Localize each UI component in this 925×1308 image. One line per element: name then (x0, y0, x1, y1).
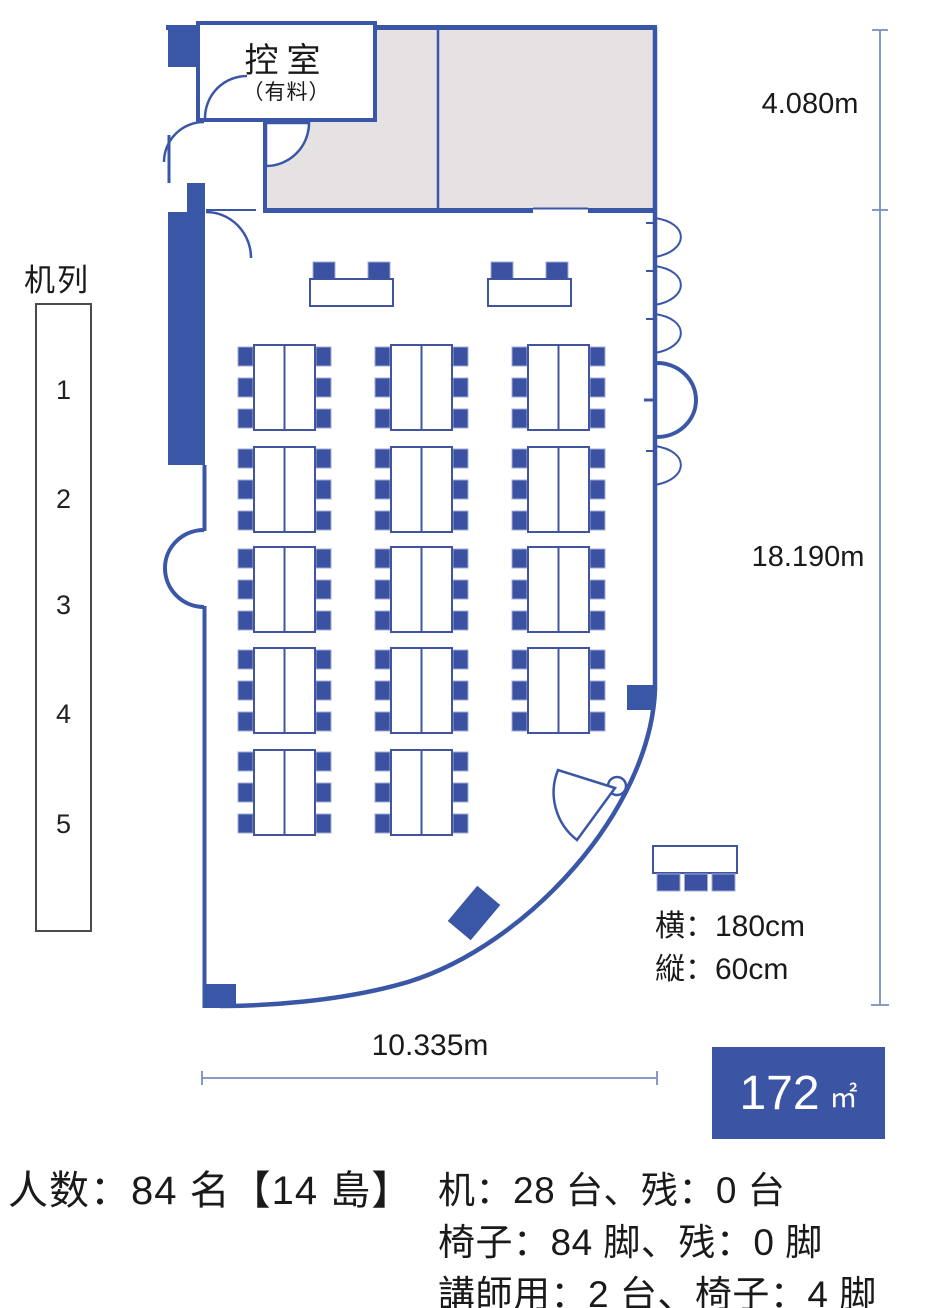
legend-desk (653, 846, 737, 891)
window-arc (646, 314, 681, 353)
desk-width-label: 横：180cm (655, 910, 805, 944)
desk-island (375, 648, 468, 733)
anteroom-label: 控室 (198, 33, 375, 82)
desk-row-number: 3 (37, 590, 90, 621)
pillar (627, 685, 655, 710)
desk-row-number: 5 (37, 809, 90, 840)
summary-chairs: 椅子：84 脚、残：0 脚 (438, 1212, 823, 1266)
left-wall-thick (168, 212, 205, 465)
window-arc (646, 218, 681, 257)
desk-row-number: 1 (37, 375, 90, 406)
area-value: 172 (739, 1066, 819, 1121)
curved-wall (220, 690, 655, 1006)
desk-island (238, 345, 331, 430)
desk-island (512, 447, 605, 532)
entrance-door-arc (206, 212, 251, 258)
double-door-left (165, 530, 204, 568)
dimension-width: 10.335m (355, 1029, 505, 1063)
summary-capacity: 人数：84 名【14 島】 (8, 1158, 412, 1216)
desk-depth-label: 縦：60cm (655, 944, 788, 988)
pillar (448, 886, 501, 941)
dimension-lower-height: 18.190m (738, 541, 878, 574)
lecturer-desk (488, 262, 571, 306)
desk-island (512, 648, 605, 733)
desk-island (375, 447, 468, 532)
desk-island (512, 345, 605, 430)
anteroom-note: （有料） (198, 76, 375, 106)
summary-desks: 机：28 台、残：0 台 (438, 1160, 785, 1214)
pillar (168, 27, 198, 67)
double-door-left (165, 568, 204, 607)
desk-island (512, 547, 605, 632)
dimension-line-horizontal (202, 1071, 657, 1085)
double-door-right (657, 363, 696, 400)
desk-island (238, 547, 331, 632)
dimension-line-vertical (871, 30, 889, 1005)
area-unit: ㎡ (830, 1070, 858, 1116)
desk-island (375, 547, 468, 632)
desk-island (238, 750, 331, 835)
desk-island (375, 750, 468, 835)
desk-island (375, 345, 468, 430)
dimension-upper-height: 4.080m (745, 88, 875, 121)
desk-row-number: 4 (37, 699, 90, 730)
desk-row-number: 2 (37, 484, 90, 515)
area-badge: 172 ㎡ (712, 1047, 885, 1139)
desk-rows-title: 机列 (24, 255, 90, 300)
summary-lecturer: 講師用：2 台、椅子：4 脚 (438, 1264, 877, 1308)
floor-plan-page: 控室 （有料） 机列 1 2 3 4 5 4.080m 18.190m 10.3… (0, 0, 925, 1308)
pillar (187, 183, 205, 213)
window-arc (646, 266, 681, 305)
desk-island (238, 648, 331, 733)
desk-island (238, 447, 331, 532)
double-door-right (657, 400, 696, 437)
window-arc (646, 446, 681, 485)
pillar (204, 984, 236, 1008)
desk-rows-box: 1 2 3 4 5 (35, 303, 92, 932)
lecturer-desk (310, 262, 393, 306)
